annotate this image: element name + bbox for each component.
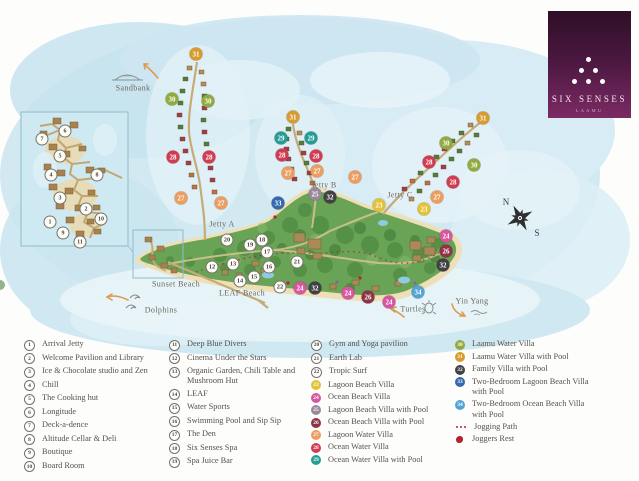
map-marker-19: 19 xyxy=(244,239,257,252)
legend-label: Welcome Pavilion and Library xyxy=(42,353,144,363)
map-marker-31: 31 xyxy=(287,111,300,124)
legend-label: Lagoon Water Villa xyxy=(328,430,393,440)
legend-label: Boutique xyxy=(42,447,72,457)
map-marker-9: 9 xyxy=(57,227,70,240)
map-marker-28: 28 xyxy=(276,149,289,162)
map-marker-26: 26 xyxy=(362,291,375,304)
legend-number-10: 10 xyxy=(24,461,35,472)
legend-number-1: 1 xyxy=(24,340,35,351)
map-marker-23: 23 xyxy=(373,199,386,212)
map-marker-29: 29 xyxy=(275,132,288,145)
legend-label: Two-Bedroom Lagoon Beach Villa with Pool xyxy=(472,377,600,398)
legend-label: Lagoon Beach Villa with Pool xyxy=(328,405,428,415)
legend-item: 18Six Senses Spa xyxy=(169,443,305,455)
yin-yang-label: Yin Yang xyxy=(456,297,489,306)
legend-item: 23Lagoon Beach Villa xyxy=(311,380,428,391)
legend-item: 13Organic Garden, Chili Table and Mushro… xyxy=(169,366,305,387)
legend-item: 22Tropic Surf xyxy=(311,366,428,378)
legend-number-15: 15 xyxy=(169,403,180,414)
map-marker-28: 28 xyxy=(423,156,436,169)
legend-number-14: 14 xyxy=(169,389,180,400)
legend-column-3: 20Gym and Yoga pavilion21Earth Lab22Trop… xyxy=(311,339,428,467)
legend-label: Cinema Under the Stars xyxy=(187,353,267,363)
map-marker-24: 24 xyxy=(383,296,396,309)
legend-item: Joggers Rest xyxy=(455,434,600,444)
legend-number-12: 12 xyxy=(169,353,180,364)
legend-number-23: 23 xyxy=(311,380,321,390)
map-marker-30: 30 xyxy=(166,93,179,106)
legend-column-2: 11Deep Blue Divers12Cinema Under the Sta… xyxy=(169,339,305,470)
legend-number-9: 9 xyxy=(24,448,35,459)
map-marker-3: 3 xyxy=(54,192,67,205)
map-marker-25: 25 xyxy=(309,188,322,201)
map-marker-27: 27 xyxy=(349,171,362,184)
map-marker-13: 13 xyxy=(227,258,240,271)
legend-item: 10Board Room xyxy=(24,461,148,473)
map-marker-27: 27 xyxy=(175,192,188,205)
legend-number-17: 17 xyxy=(169,430,180,441)
leaf-beach-label: LEAF Beach xyxy=(219,289,265,298)
legend-number-7: 7 xyxy=(24,421,35,432)
legend-number-24: 24 xyxy=(311,393,321,403)
legend-label: Ocean Beach Villa with Pool xyxy=(328,417,424,427)
legend-item: 4Chill xyxy=(24,380,148,392)
jetty-c-label: Jetty C xyxy=(387,191,412,200)
legend-label: Chill xyxy=(42,380,59,390)
legend-item: 25Lagoon Beach Villa with Pool xyxy=(311,405,428,416)
legend-number-5: 5 xyxy=(24,394,35,405)
map-marker-24: 24 xyxy=(294,282,307,295)
legend-item: 20Gym and Yoga pavilion xyxy=(311,339,428,351)
six-senses-logo: SIX SENSES LAAMU xyxy=(548,11,631,118)
map-marker-6: 6 xyxy=(59,125,72,138)
legend-column-4: 30Laamu Water Villa31Laamu Water Villa w… xyxy=(455,339,600,447)
legend-item: 16Swimming Pool and Sip Sip xyxy=(169,416,305,428)
legend-label: Lagoon Beach Villa xyxy=(328,380,394,390)
legend-number-8: 8 xyxy=(24,434,35,445)
legend-item: 27Lagoon Water Villa xyxy=(311,430,428,441)
legend-item: 19Spa Juice Bar xyxy=(169,456,305,468)
legend-label: Board Room xyxy=(42,461,85,471)
map-marker-27: 27 xyxy=(282,167,295,180)
legend-item: 21Earth Lab xyxy=(311,353,428,365)
legend-item: 2Welcome Pavilion and Library xyxy=(24,353,148,365)
legend-number-27: 27 xyxy=(311,430,321,440)
legend-item: 31Laamu Water Villa with Pool xyxy=(455,352,600,363)
legend-number-21: 21 xyxy=(311,353,322,364)
legend-item: 24Ocean Beach Villa xyxy=(311,392,428,403)
legend-number-31: 31 xyxy=(455,352,465,362)
joggers-rest-icon xyxy=(456,436,463,443)
legend-item: 5The Cooking hut xyxy=(24,393,148,405)
legend-number-13: 13 xyxy=(169,367,180,378)
legend-label: Deck-a-dence xyxy=(42,420,88,430)
legend-item: 34Two-Bedroom Ocean Beach Villa with Poo… xyxy=(455,399,600,420)
map-marker-27: 27 xyxy=(215,197,228,210)
map-marker-10: 10 xyxy=(95,213,108,226)
map-marker-31: 31 xyxy=(477,112,490,125)
legend-label: Family Villa with Pool xyxy=(472,364,548,374)
map-marker-24: 24 xyxy=(440,230,453,243)
legend-number-26: 26 xyxy=(311,418,321,428)
legend-item: 1Arrival Jetty xyxy=(24,339,148,351)
map-marker-21: 21 xyxy=(291,256,304,269)
map-marker-8: 8 xyxy=(91,169,104,182)
map-marker-32: 32 xyxy=(309,282,322,295)
map-marker-4: 4 xyxy=(45,169,58,182)
legend-number-28: 28 xyxy=(311,443,321,453)
map-marker-15: 15 xyxy=(248,271,261,284)
legend-item: 14LEAF xyxy=(169,389,305,401)
legend-number-22: 22 xyxy=(311,367,322,378)
map-marker-32: 32 xyxy=(324,191,337,204)
map-marker-33: 33 xyxy=(272,197,285,210)
logo-brand-name: SIX SENSES xyxy=(548,94,631,104)
legend-label: Altitude Cellar & Deli xyxy=(42,434,116,444)
map-marker-28: 28 xyxy=(310,150,323,163)
legend-label: Ocean Beach Villa xyxy=(328,392,390,402)
legend-item: 9Boutique xyxy=(24,447,148,459)
map-marker-30: 30 xyxy=(202,95,215,108)
legend-label: Ice & Chocolate studio and Zen xyxy=(42,366,148,376)
compass-south-label: S xyxy=(534,228,539,238)
legend-label: Spa Juice Bar xyxy=(187,456,233,466)
legend-item: 8Altitude Cellar & Deli xyxy=(24,434,148,446)
legend-label: Swimming Pool and Sip Sip xyxy=(187,416,281,426)
map-marker-31: 31 xyxy=(190,48,203,61)
map-marker-27: 27 xyxy=(431,191,444,204)
legend-label: Gym and Yoga pavilion xyxy=(329,339,408,349)
legend-number-34: 34 xyxy=(455,400,465,410)
map-marker-12: 12 xyxy=(206,261,219,274)
map-marker-22: 22 xyxy=(274,281,287,294)
legend-label: Earth Lab xyxy=(329,353,362,363)
legend-number-6: 6 xyxy=(24,407,35,418)
map-marker-29: 29 xyxy=(305,132,318,145)
legend-label: Water Sports xyxy=(187,402,230,412)
legend-label: Longitude xyxy=(42,407,76,417)
map-marker-11: 11 xyxy=(74,236,87,249)
map-marker-34: 34 xyxy=(412,286,425,299)
map-marker-2: 2 xyxy=(80,203,93,216)
legend-label: Organic Garden, Chili Table and Mushroom… xyxy=(187,366,305,387)
map-marker-28: 28 xyxy=(203,151,216,164)
legend-label: Laamu Water Villa with Pool xyxy=(472,352,569,362)
map-marker-20: 20 xyxy=(221,234,234,247)
legend-number-19: 19 xyxy=(169,457,180,468)
legend-number-25: 25 xyxy=(311,405,321,415)
legend-number-18: 18 xyxy=(169,443,180,454)
map-marker-26: 26 xyxy=(440,245,453,258)
map-marker-27: 27 xyxy=(311,165,324,178)
logo-location: LAAMU xyxy=(548,108,631,113)
legend-label: Deep Blue Divers xyxy=(187,339,246,349)
legend-number-20: 20 xyxy=(311,340,322,351)
map-marker-1: 1 xyxy=(44,216,57,229)
legend-item: 3Ice & Chocolate studio and Zen xyxy=(24,366,148,378)
legend-number-30: 30 xyxy=(455,340,465,350)
legend-number-16: 16 xyxy=(169,416,180,427)
map-marker-32: 32 xyxy=(437,259,450,272)
map-marker-28: 28 xyxy=(167,151,180,164)
legend-label: Joggers Rest xyxy=(472,434,514,444)
legend-label: Six Senses Spa xyxy=(187,443,237,453)
legend-item: 32Family Villa with Pool xyxy=(455,364,600,375)
map-marker-14: 14 xyxy=(234,275,247,288)
map-marker-30: 30 xyxy=(468,159,481,172)
legend-item: 26Ocean Beach Villa with Pool xyxy=(311,417,428,428)
legend-item: 29Ocean Water Villa with Pool xyxy=(311,455,428,466)
legend-number-4: 4 xyxy=(24,380,35,391)
legend-label: Arrival Jetty xyxy=(42,339,84,349)
map-marker-7: 7 xyxy=(36,133,49,146)
legend-label: Laamu Water Villa xyxy=(472,339,535,349)
resort-map-page: N S Sandbank Jetty A Jetty B Jetty C Sun… xyxy=(0,0,639,481)
legend-item: 15Water Sports xyxy=(169,402,305,414)
legend-label: Ocean Water Villa xyxy=(328,442,389,452)
legend-label: Two-Bedroom Ocean Beach Villa with Pool xyxy=(472,399,600,420)
legend-item: 11Deep Blue Divers xyxy=(169,339,305,351)
map-marker-16: 16 xyxy=(263,261,276,274)
legend-number-33: 33 xyxy=(455,377,465,387)
map-marker-18: 18 xyxy=(256,234,269,247)
legend-label: LEAF xyxy=(187,389,208,399)
map-marker-5: 5 xyxy=(54,150,67,163)
map-marker-17: 17 xyxy=(261,246,274,259)
map-marker-28: 28 xyxy=(447,176,460,189)
legend-number-32: 32 xyxy=(455,365,465,375)
legend-item: 33Two-Bedroom Lagoon Beach Villa with Po… xyxy=(455,377,600,398)
legend-number-11: 11 xyxy=(169,340,180,351)
legend-number-2: 2 xyxy=(24,353,35,364)
jetty-a-label: Jetty A xyxy=(209,220,234,229)
map-marker-24: 24 xyxy=(342,287,355,300)
compass-north-label: N xyxy=(503,197,510,207)
legend-label: The Cooking hut xyxy=(42,393,98,403)
map-marker-30: 30 xyxy=(440,137,453,150)
legend-item: 12Cinema Under the Stars xyxy=(169,353,305,365)
legend-label: Ocean Water Villa with Pool xyxy=(328,455,423,465)
sunset-beach-label: Sunset Beach xyxy=(152,280,200,289)
turtles-label: Turtles xyxy=(400,305,425,314)
legend-label: Tropic Surf xyxy=(329,366,367,376)
inset-map xyxy=(21,112,128,246)
legend-item: 6Longitude xyxy=(24,407,148,419)
legend-label: Jogging Path xyxy=(474,422,517,432)
dolphins-label: Dolphins xyxy=(145,306,178,315)
six-senses-dots-icon xyxy=(548,55,631,95)
legend-number-29: 29 xyxy=(311,455,321,465)
map-marker-23: 23 xyxy=(418,203,431,216)
legend-column-1: 1Arrival Jetty2Welcome Pavilion and Libr… xyxy=(24,339,148,474)
legend-item: 17The Den xyxy=(169,429,305,441)
jogging-path-icon xyxy=(455,422,467,432)
legend-item: 30Laamu Water Villa xyxy=(455,339,600,350)
legend-label: The Den xyxy=(187,429,216,439)
legend-number-3: 3 xyxy=(24,367,35,378)
legend-item: Jogging Path xyxy=(455,422,600,433)
sandbank-label: Sandbank xyxy=(116,84,151,93)
legend-item: 7Deck-a-dence xyxy=(24,420,148,432)
legend-item: 28Ocean Water Villa xyxy=(311,442,428,453)
